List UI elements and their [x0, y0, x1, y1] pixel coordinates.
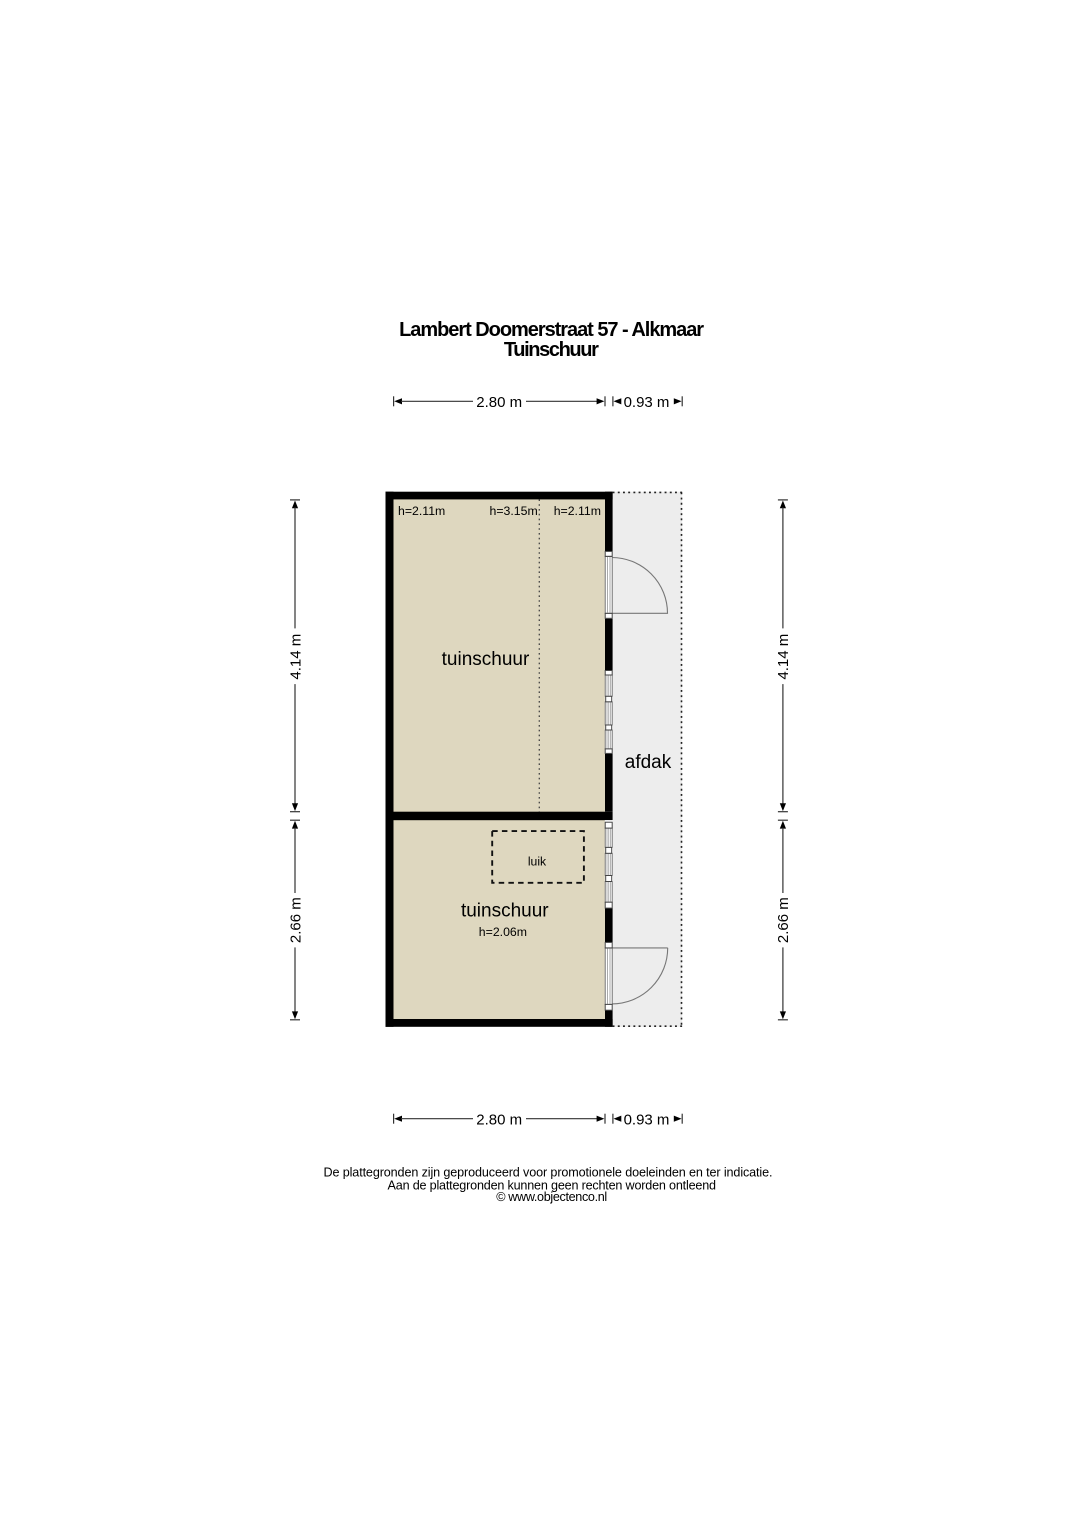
svg-text:4.14 m: 4.14 m: [775, 634, 792, 680]
svg-text:2.80 m: 2.80 m: [476, 394, 522, 411]
svg-text:0.93 m: 0.93 m: [624, 394, 670, 411]
svg-text:2.66 m: 2.66 m: [775, 897, 792, 943]
svg-text:h=2.11m: h=2.11m: [398, 504, 445, 518]
svg-text:© www.objectenco.nl: © www.objectenco.nl: [496, 1190, 607, 1204]
svg-text:tuinschuur: tuinschuur: [461, 901, 549, 922]
svg-text:h=3.15m: h=3.15m: [489, 504, 537, 518]
svg-text:h=2.06m: h=2.06m: [479, 925, 527, 939]
svg-text:afdak: afdak: [625, 752, 672, 773]
svg-text:2.66 m: 2.66 m: [287, 897, 304, 943]
svg-text:De plattegronden zijn geproduc: De plattegronden zijn geproduceerd voor …: [324, 1166, 773, 1180]
svg-text:luik: luik: [528, 855, 547, 869]
svg-text:h=2.11m: h=2.11m: [554, 504, 601, 518]
svg-text:0.93 m: 0.93 m: [624, 1112, 670, 1129]
svg-text:tuinschuur: tuinschuur: [442, 649, 530, 670]
svg-text:2.80 m: 2.80 m: [476, 1112, 522, 1129]
svg-text:Lambert Doomerstraat 57 - Alkm: Lambert Doomerstraat 57 - Alkmaar: [399, 319, 704, 341]
svg-text:Tuinschuur: Tuinschuur: [504, 339, 599, 361]
svg-text:4.14 m: 4.14 m: [287, 634, 304, 680]
